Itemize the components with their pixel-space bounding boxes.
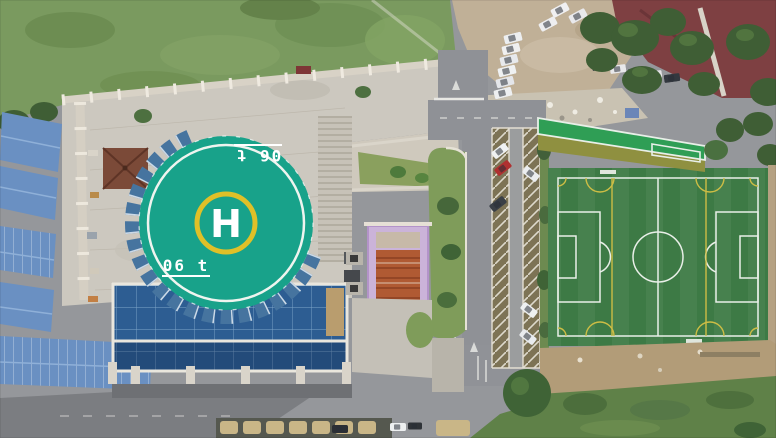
red-object-on-wall: [296, 66, 311, 74]
bench: [600, 170, 616, 174]
grass-patch: [406, 312, 434, 348]
roof-patch: [326, 288, 344, 336]
svg-text:06 t: 06 t: [163, 256, 210, 275]
helipad-letter: H: [210, 202, 242, 246]
tree-by-stand: [704, 140, 728, 160]
aerial-photo: H 06 t 06 t: [0, 0, 776, 438]
soccer-field: [548, 168, 770, 346]
helipad: H 06 t 06 t: [132, 135, 314, 317]
parking-lane: [489, 128, 541, 368]
bench: [686, 339, 702, 343]
blue-tarp: [625, 108, 639, 118]
west-wall: [80, 102, 84, 300]
median-grass: [428, 148, 466, 339]
rooftop-unit: [344, 270, 360, 282]
round-tree: [503, 369, 551, 417]
right-edge-dirt: [768, 165, 776, 345]
weight-marking-top: 06 t: [234, 145, 282, 165]
walkway-shadow: [112, 384, 352, 398]
east-pavement: [432, 338, 464, 392]
weight-marking-bottom: 06 t: [162, 256, 210, 276]
svg-text:06 t: 06 t: [235, 146, 282, 165]
